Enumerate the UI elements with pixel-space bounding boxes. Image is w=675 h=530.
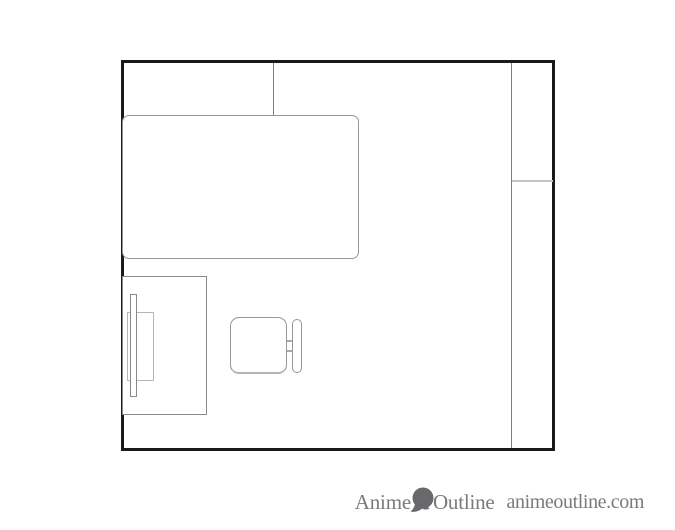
brand-prefix-text: Anime	[355, 490, 411, 515]
head-silhouette-icon	[410, 487, 434, 514]
domain-text: animeoutline.com	[507, 490, 644, 515]
right-partition-divider-line	[512, 180, 553, 182]
chair-backrest	[292, 319, 302, 373]
closet-partition-line	[273, 63, 274, 116]
floor-plan-canvas: Anime Outline animeoutline.com	[0, 0, 675, 530]
brand-lockup: Anime Outline	[355, 487, 495, 515]
monitor-screen	[130, 294, 137, 397]
right-partition-line	[511, 63, 512, 448]
chair-seat	[230, 317, 287, 374]
watermark: Anime Outline animeoutline.com	[355, 485, 644, 515]
brand-suffix-text: Outline	[433, 490, 495, 515]
bed	[122, 115, 359, 259]
